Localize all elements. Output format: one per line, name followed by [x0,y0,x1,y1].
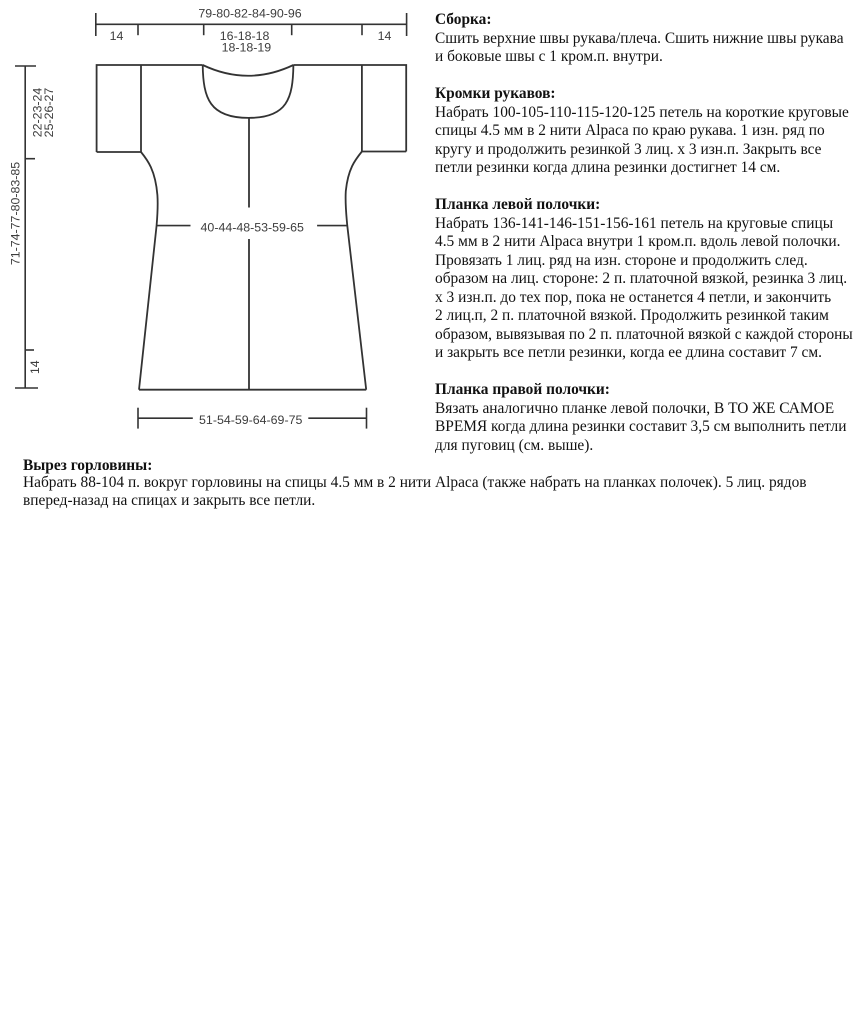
svg-text:18-18-19: 18-18-19 [222,40,272,54]
svg-text:40-44-48-53-59-65: 40-44-48-53-59-65 [201,220,304,234]
svg-text:79-80-82-84-90-96: 79-80-82-84-90-96 [198,6,301,20]
svg-text:14: 14 [110,29,124,43]
svg-text:14: 14 [28,360,42,374]
svg-text:71-74-77-80-83-85: 71-74-77-80-83-85 [9,162,23,265]
svg-text:51-54-59-64-69-75: 51-54-59-64-69-75 [199,413,302,427]
svg-text:25-26-27: 25-26-27 [42,88,56,138]
svg-text:14: 14 [378,29,392,43]
